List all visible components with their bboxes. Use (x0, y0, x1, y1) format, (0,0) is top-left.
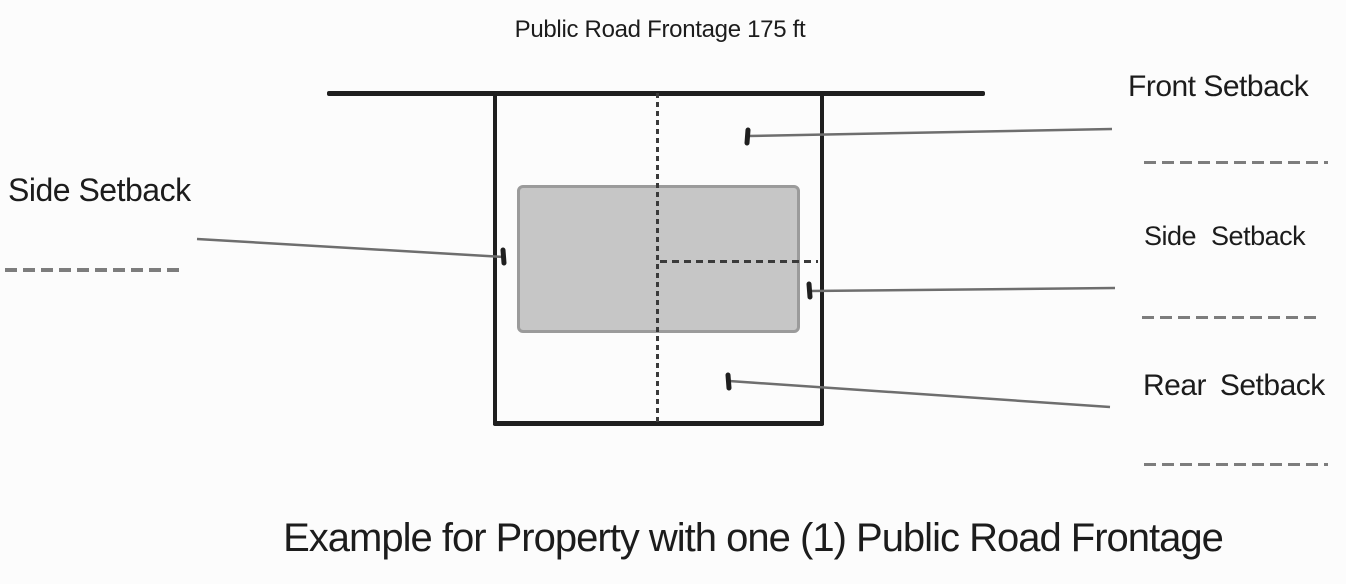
rear-setback-dash-mark (1144, 463, 1328, 466)
vertical-centerline (656, 93, 659, 425)
horizontal-centerline (660, 260, 818, 263)
rear-setback-label: Rear Setback (1143, 369, 1325, 403)
left-side-setback-tick (503, 250, 504, 263)
side-setback-left-label: Side Setback (8, 172, 191, 209)
side-setback-right-label: Side Setback (1144, 221, 1305, 252)
front-setback-label: Front Setback (1128, 70, 1308, 104)
property-boundary-right (820, 93, 824, 425)
diagram-title: Public Road Frontage 175 ft (400, 16, 920, 44)
rear-setback-tick (728, 375, 729, 388)
left-side-setback-leader-line (197, 239, 504, 257)
right-side-setback-leader-line (809, 288, 1115, 291)
rear-setback-leader-line (729, 381, 1110, 407)
front-setback-tick (747, 130, 748, 143)
front-setback-leader-line (748, 129, 1112, 136)
front-setback-dash-mark (1144, 161, 1328, 164)
side-setback-left-dash-mark (5, 268, 185, 272)
side-setback-right-dash-mark (1142, 316, 1322, 319)
diagram-caption: Example for Property with one (1) Public… (258, 516, 1248, 561)
right-side-setback-tick (809, 284, 810, 297)
setback-diagram: Public Road Frontage 175 ft Side Setback… (0, 0, 1346, 584)
property-boundary-left (493, 93, 497, 425)
